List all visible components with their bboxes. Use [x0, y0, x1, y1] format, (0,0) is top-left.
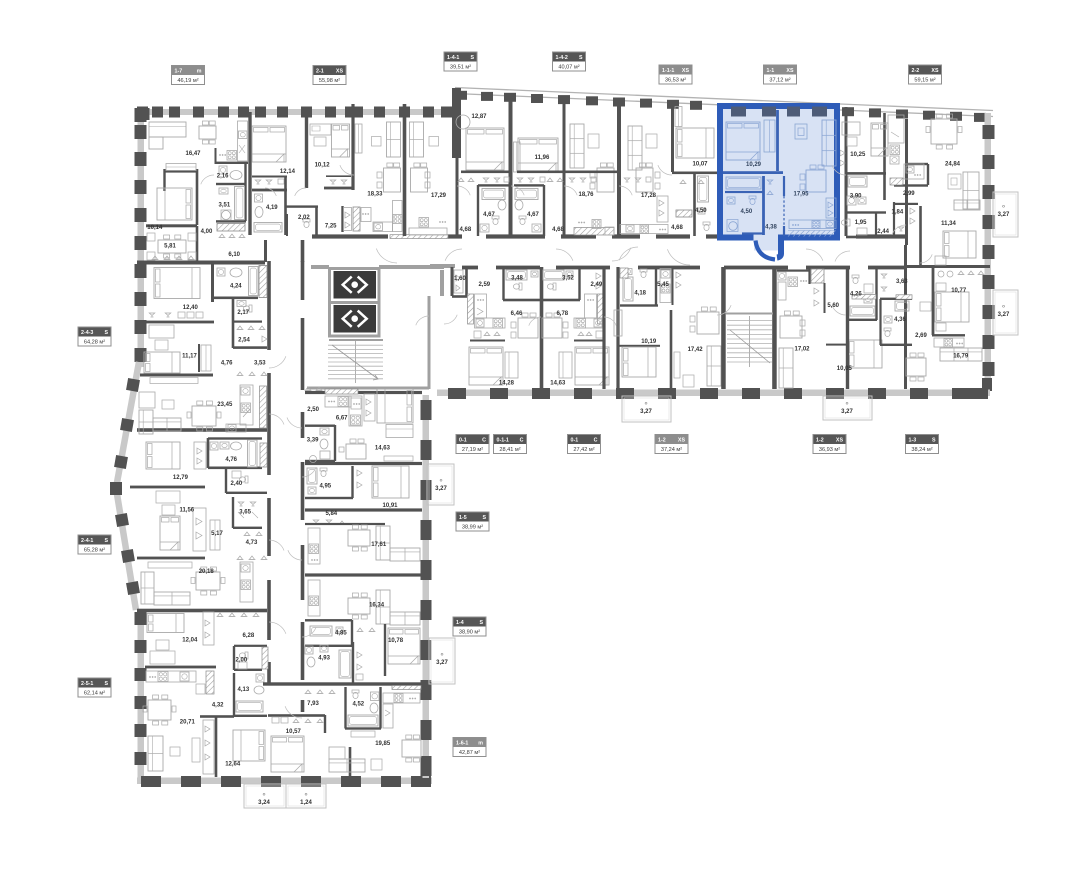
- svg-text:5,84: 5,84: [325, 511, 337, 517]
- svg-text:S: S: [470, 55, 474, 61]
- svg-text:1-4-1: 1-4-1: [447, 55, 459, 61]
- svg-text:65,28 м²: 65,28 м²: [84, 548, 105, 554]
- svg-text:36,53 м²: 36,53 м²: [665, 78, 686, 84]
- svg-text:1,24: 1,24: [300, 800, 312, 806]
- svg-text:11,96: 11,96: [535, 155, 550, 161]
- svg-text:m: m: [197, 69, 202, 75]
- svg-text:3,48: 3,48: [511, 276, 523, 282]
- svg-text:20,71: 20,71: [180, 719, 196, 725]
- svg-text:4,52: 4,52: [352, 702, 364, 708]
- svg-text:1-4-2: 1-4-2: [556, 55, 568, 61]
- svg-text:2,02: 2,02: [298, 215, 310, 221]
- svg-text:6,28: 6,28: [243, 633, 255, 639]
- svg-text:XS: XS: [682, 68, 690, 74]
- svg-text:42,87 м²: 42,87 м²: [459, 750, 480, 756]
- svg-text:4,67: 4,67: [483, 212, 495, 218]
- svg-text:1-3: 1-3: [909, 438, 917, 444]
- svg-text:3,27: 3,27: [435, 486, 447, 492]
- svg-text:24,84: 24,84: [945, 162, 961, 168]
- svg-text:37,24 м²: 37,24 м²: [661, 447, 682, 453]
- svg-text:o: o: [440, 478, 443, 483]
- svg-text:11,17: 11,17: [182, 353, 197, 359]
- svg-text:6,10: 6,10: [228, 252, 240, 258]
- svg-text:7,25: 7,25: [325, 224, 337, 230]
- svg-text:19,85: 19,85: [375, 741, 391, 747]
- svg-text:0-1: 0-1: [459, 438, 467, 444]
- svg-text:2,54: 2,54: [238, 337, 250, 343]
- svg-text:14,63: 14,63: [375, 446, 391, 452]
- svg-text:20,18: 20,18: [199, 569, 215, 575]
- svg-text:18,76: 18,76: [578, 192, 594, 198]
- svg-text:C: C: [482, 438, 486, 444]
- svg-text:o: o: [645, 401, 648, 406]
- svg-text:1-7: 1-7: [175, 69, 183, 75]
- svg-text:C: C: [520, 438, 524, 444]
- svg-text:2-5-1: 2-5-1: [81, 681, 93, 687]
- svg-text:3,27: 3,27: [640, 409, 652, 415]
- svg-text:1,84: 1,84: [892, 210, 904, 216]
- svg-text:0-1-1: 0-1-1: [497, 438, 509, 444]
- svg-text:2,44: 2,44: [877, 229, 889, 235]
- svg-text:38,99 м²: 38,99 м²: [462, 525, 483, 531]
- svg-text:S: S: [579, 55, 583, 61]
- svg-text:4,68: 4,68: [460, 227, 472, 233]
- svg-text:2-4-1: 2-4-1: [81, 538, 93, 544]
- svg-text:4,18: 4,18: [634, 291, 646, 297]
- svg-text:4,68: 4,68: [552, 227, 564, 233]
- svg-text:1-1: 1-1: [767, 68, 775, 74]
- svg-text:3,52: 3,52: [562, 276, 574, 282]
- svg-text:o: o: [846, 401, 849, 406]
- svg-text:o: o: [441, 652, 444, 657]
- svg-text:1-6-1: 1-6-1: [456, 741, 468, 747]
- svg-text:2-1: 2-1: [316, 69, 324, 75]
- svg-text:S: S: [104, 681, 108, 687]
- svg-text:4,00: 4,00: [201, 229, 213, 235]
- svg-text:3,51: 3,51: [219, 203, 231, 209]
- svg-text:16,79: 16,79: [953, 354, 969, 360]
- svg-text:17,42: 17,42: [688, 347, 704, 353]
- svg-text:3,27: 3,27: [436, 660, 448, 666]
- svg-text:XS: XS: [836, 438, 844, 444]
- svg-text:1-4: 1-4: [456, 620, 464, 626]
- svg-text:38,24 м²: 38,24 м²: [911, 447, 932, 453]
- svg-text:5,45: 5,45: [657, 282, 669, 288]
- svg-text:2,16: 2,16: [217, 173, 229, 179]
- svg-text:18,33: 18,33: [367, 192, 383, 198]
- svg-text:10,05: 10,05: [837, 366, 853, 372]
- svg-text:0-1: 0-1: [571, 438, 579, 444]
- svg-text:3,27: 3,27: [998, 312, 1010, 318]
- svg-text:12,64: 12,64: [225, 761, 241, 767]
- svg-text:10,29: 10,29: [746, 162, 762, 168]
- svg-text:17,95: 17,95: [793, 192, 809, 198]
- svg-text:2,69: 2,69: [915, 333, 927, 339]
- svg-text:10,77: 10,77: [951, 288, 967, 294]
- svg-text:36,93 м²: 36,93 м²: [819, 447, 840, 453]
- svg-text:46,19 м²: 46,19 м²: [177, 78, 198, 84]
- svg-text:2,40: 2,40: [231, 481, 243, 487]
- svg-text:3,65: 3,65: [239, 510, 251, 516]
- svg-text:XS: XS: [786, 68, 794, 74]
- svg-text:4,50: 4,50: [741, 209, 753, 215]
- svg-text:59,15 м²: 59,15 м²: [914, 78, 935, 84]
- svg-text:10,14: 10,14: [147, 225, 163, 231]
- svg-text:4,68: 4,68: [671, 225, 683, 231]
- svg-text:16,47: 16,47: [185, 151, 201, 157]
- svg-text:S: S: [479, 620, 483, 626]
- svg-text:4,50: 4,50: [695, 208, 707, 214]
- svg-text:17,02: 17,02: [794, 347, 810, 353]
- svg-text:o: o: [305, 792, 308, 797]
- svg-text:39,51 м²: 39,51 м²: [450, 65, 471, 71]
- svg-text:3,53: 3,53: [254, 360, 266, 366]
- svg-text:17,29: 17,29: [431, 193, 447, 199]
- svg-text:3,63: 3,63: [896, 279, 908, 285]
- svg-text:37,12 м²: 37,12 м²: [769, 78, 790, 84]
- svg-text:11,34: 11,34: [941, 221, 956, 227]
- svg-text:12,87: 12,87: [471, 114, 487, 120]
- svg-text:14,28: 14,28: [499, 380, 515, 386]
- svg-text:1-2: 1-2: [816, 438, 824, 444]
- svg-text:10,19: 10,19: [641, 339, 657, 345]
- svg-text:S: S: [932, 438, 936, 444]
- svg-text:10,57: 10,57: [286, 729, 302, 735]
- svg-text:64,28 м²: 64,28 м²: [84, 340, 105, 346]
- svg-text:S: S: [482, 515, 486, 521]
- svg-text:m: m: [478, 741, 483, 747]
- svg-text:2-4-3: 2-4-3: [81, 330, 93, 336]
- svg-text:4,38: 4,38: [765, 225, 777, 231]
- svg-text:4,24: 4,24: [230, 284, 242, 290]
- svg-text:5,81: 5,81: [164, 243, 176, 249]
- svg-text:10,12: 10,12: [315, 163, 331, 169]
- svg-text:3,27: 3,27: [998, 212, 1010, 218]
- svg-text:2,49: 2,49: [591, 282, 603, 288]
- svg-text:55,98 м²: 55,98 м²: [319, 78, 340, 84]
- svg-text:3,90: 3,90: [850, 193, 862, 199]
- svg-text:6,46: 6,46: [511, 311, 523, 317]
- svg-text:4,13: 4,13: [238, 687, 250, 693]
- svg-text:10,25: 10,25: [850, 152, 866, 158]
- svg-text:4,73: 4,73: [246, 540, 258, 546]
- svg-text:38,90 м²: 38,90 м²: [459, 630, 480, 636]
- svg-text:4,67: 4,67: [527, 212, 539, 218]
- svg-text:10,91: 10,91: [382, 503, 398, 509]
- svg-text:5,17: 5,17: [211, 531, 223, 537]
- svg-text:12,40: 12,40: [183, 305, 199, 311]
- svg-text:1-5: 1-5: [459, 515, 467, 521]
- svg-text:62,14 м²: 62,14 м²: [84, 691, 105, 697]
- svg-text:27,19 м²: 27,19 м²: [462, 447, 483, 453]
- svg-text:4,76: 4,76: [225, 457, 237, 463]
- svg-text:o: o: [263, 792, 266, 797]
- svg-text:1-2: 1-2: [658, 438, 666, 444]
- svg-text:40,07 м²: 40,07 м²: [558, 65, 579, 71]
- svg-text:10,78: 10,78: [388, 638, 404, 644]
- svg-text:17,61: 17,61: [371, 542, 387, 548]
- svg-text:2,59: 2,59: [478, 282, 490, 288]
- svg-text:4,93: 4,93: [318, 656, 330, 662]
- svg-text:2,50: 2,50: [307, 407, 319, 413]
- svg-text:C: C: [594, 438, 598, 444]
- svg-text:3,27: 3,27: [841, 409, 853, 415]
- svg-text:S: S: [104, 538, 108, 544]
- svg-text:1,60: 1,60: [454, 276, 466, 282]
- svg-text:3,39: 3,39: [307, 437, 319, 443]
- svg-text:4,76: 4,76: [221, 360, 233, 366]
- svg-text:4,26: 4,26: [850, 292, 862, 298]
- svg-text:2,00: 2,00: [236, 657, 248, 663]
- svg-text:5,60: 5,60: [827, 303, 839, 309]
- svg-text:4,19: 4,19: [266, 205, 278, 211]
- svg-text:6,67: 6,67: [336, 416, 348, 422]
- svg-text:23,45: 23,45: [217, 402, 233, 408]
- svg-text:2,17: 2,17: [237, 310, 249, 316]
- svg-text:3,24: 3,24: [258, 800, 270, 806]
- svg-text:16,34: 16,34: [369, 602, 385, 608]
- svg-text:14,63: 14,63: [550, 380, 566, 386]
- svg-text:o: o: [1002, 304, 1005, 309]
- svg-text:S: S: [104, 330, 108, 336]
- svg-text:XS: XS: [678, 438, 686, 444]
- svg-text:2,99: 2,99: [903, 191, 915, 197]
- svg-text:11,56: 11,56: [179, 508, 194, 514]
- svg-text:17,28: 17,28: [641, 193, 657, 199]
- svg-text:4,36: 4,36: [894, 317, 906, 323]
- svg-text:10,07: 10,07: [692, 162, 708, 168]
- svg-text:12,79: 12,79: [173, 475, 189, 481]
- svg-text:27,42 м²: 27,42 м²: [573, 447, 594, 453]
- svg-text:XS: XS: [931, 68, 939, 74]
- svg-text:4,95: 4,95: [319, 484, 331, 490]
- svg-text:12,14: 12,14: [280, 169, 296, 175]
- svg-text:1-1-1: 1-1-1: [662, 68, 674, 74]
- svg-text:4,85: 4,85: [335, 630, 347, 636]
- svg-text:4,32: 4,32: [212, 703, 224, 709]
- svg-text:2-2: 2-2: [912, 68, 920, 74]
- svg-text:XS: XS: [336, 69, 344, 75]
- svg-text:6,78: 6,78: [556, 311, 568, 317]
- svg-text:7,93: 7,93: [307, 701, 319, 707]
- svg-text:1,95: 1,95: [855, 220, 867, 226]
- svg-text:28,41 м²: 28,41 м²: [499, 447, 520, 453]
- svg-text:o: o: [1002, 204, 1005, 209]
- svg-text:12,04: 12,04: [182, 637, 198, 643]
